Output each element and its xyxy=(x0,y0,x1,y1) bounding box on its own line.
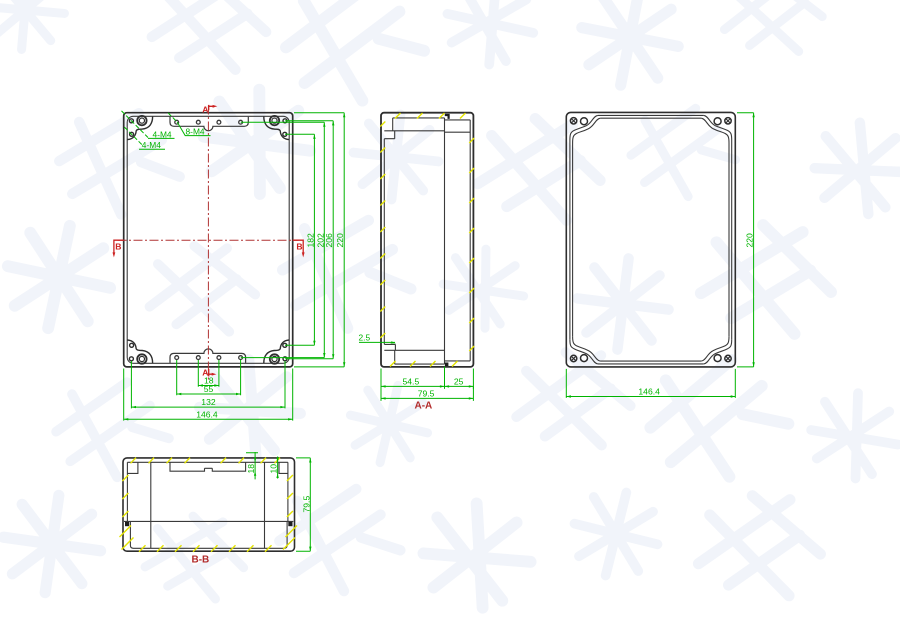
svg-text:B: B xyxy=(296,241,302,251)
svg-text:54.5: 54.5 xyxy=(403,377,420,387)
svg-text:4-M4: 4-M4 xyxy=(142,140,161,150)
svg-text:79.5: 79.5 xyxy=(418,389,435,399)
svg-text:18: 18 xyxy=(246,464,256,474)
svg-text:220: 220 xyxy=(745,233,755,248)
svg-text:2.5: 2.5 xyxy=(359,333,371,343)
svg-text:8-M4: 8-M4 xyxy=(186,126,205,136)
svg-text:4-M4: 4-M4 xyxy=(153,129,172,139)
svg-text:206: 206 xyxy=(324,233,334,248)
svg-text:B: B xyxy=(115,241,121,251)
svg-text:79.5: 79.5 xyxy=(301,496,311,513)
svg-text:220: 220 xyxy=(335,233,345,248)
svg-text:A-A: A-A xyxy=(415,401,433,412)
svg-text:132: 132 xyxy=(201,397,216,407)
svg-text:25: 25 xyxy=(454,377,464,387)
svg-text:146.4: 146.4 xyxy=(196,409,218,419)
svg-text:146.4: 146.4 xyxy=(638,387,660,397)
svg-text:B-B: B-B xyxy=(192,554,210,565)
svg-text:55: 55 xyxy=(204,384,214,394)
svg-text:10: 10 xyxy=(268,464,278,474)
svg-text:A: A xyxy=(202,105,208,115)
svg-text:182: 182 xyxy=(305,233,315,248)
